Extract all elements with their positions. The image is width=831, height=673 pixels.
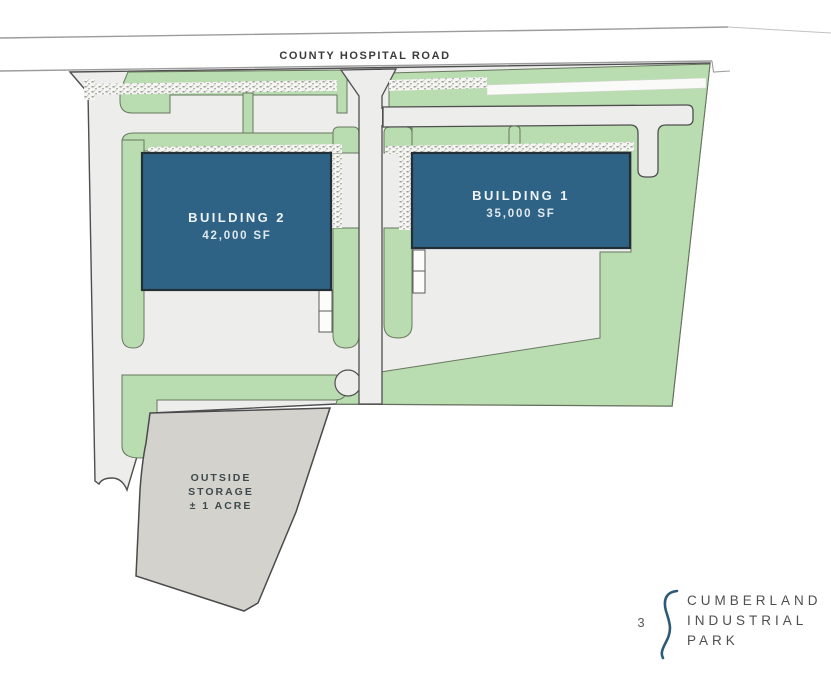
building-1: BUILDING 1 35,000 SF: [412, 153, 630, 248]
road-label: COUNTY HOSPITAL ROAD: [279, 50, 450, 62]
site-plan-drawing: COUNTY HOSPITAL ROAD OUTSIDE STORAGE ±: [0, 0, 831, 673]
outside-storage-area: OUTSIDE STORAGE ± 1 ACRE: [136, 408, 330, 611]
storage-label-line3: ± 1 ACRE: [190, 500, 253, 512]
road-edge-top: [0, 27, 728, 38]
storage-label-line1: OUTSIDE: [191, 472, 252, 484]
logo-s-mark-icon: [662, 591, 677, 658]
building-2-area: 42,000 SF: [202, 230, 271, 242]
dock-building2-b: [319, 311, 332, 332]
logo-name-line1: CUMBERLAND: [687, 593, 822, 608]
storage-label-line2: STORAGE: [188, 486, 254, 498]
landscape-west-strip: [122, 140, 144, 348]
logo-name-line3: PARK: [687, 633, 739, 648]
footer-logo: 3 CUMBERLAND INDUSTRIAL PARK: [637, 591, 821, 658]
dock-building1-b: [413, 271, 425, 293]
dock-building1-a: [413, 250, 425, 271]
building-1-label: BUILDING 1: [472, 188, 570, 203]
landscape-median-a: [333, 228, 359, 348]
page-number: 3: [637, 615, 644, 630]
building-2-label: BUILDING 2: [188, 210, 286, 225]
driveway-junction-patch: [360, 109, 382, 125]
logo-name-line2: INDUSTRIAL: [687, 613, 807, 628]
landscape-nub: [509, 126, 520, 147]
landscape-median-b: [384, 228, 412, 338]
hatch-west-of-building1: [399, 152, 411, 230]
pavement-bump: [335, 370, 361, 396]
road-edge-step: [712, 61, 730, 72]
building-2: BUILDING 2 42,000 SF: [142, 153, 331, 290]
building-1-area: 35,000 SF: [486, 208, 555, 220]
site-plan-page: COUNTY HOSPITAL ROAD OUTSIDE STORAGE ±: [0, 0, 831, 673]
dock-building2-a: [319, 290, 332, 311]
road-edge-top-right: [728, 27, 831, 33]
